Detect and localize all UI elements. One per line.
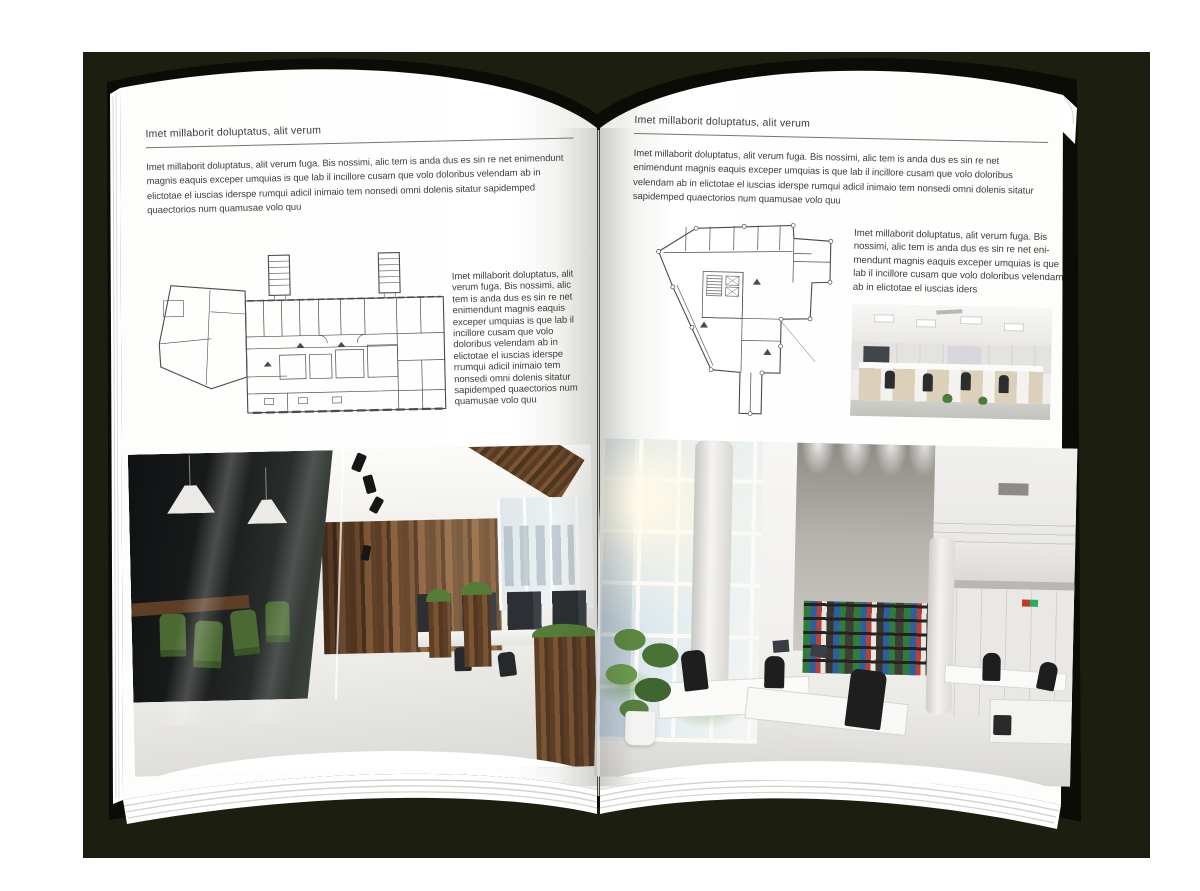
wood-planter bbox=[463, 593, 492, 668]
plan-section: Imet millaborit doluptatus, alit verum f… bbox=[123, 236, 590, 434]
header-rule bbox=[634, 133, 1048, 143]
left-page: Imet millaborit doluptatus, alit verum I… bbox=[120, 102, 599, 802]
right-column: Imet millaborit doluptatus, alit verum f… bbox=[850, 223, 1066, 428]
black-chair bbox=[844, 668, 887, 730]
office-photo-dark-wood bbox=[128, 444, 598, 776]
desk-plant bbox=[978, 396, 987, 404]
office-chair bbox=[885, 370, 895, 388]
office-chair bbox=[961, 372, 971, 390]
page-title: Imet millaborit doluptatus, alit verum bbox=[634, 114, 1076, 136]
waste-bin bbox=[993, 715, 1011, 735]
right-page: Imet millaborit doluptatus, alit verum I… bbox=[594, 93, 1085, 813]
wood-planter bbox=[428, 599, 451, 657]
wall-vent bbox=[998, 483, 1028, 496]
column bbox=[926, 537, 956, 714]
side-paragraph: Imet millaborit doluptatus, alit verum f… bbox=[853, 227, 1066, 298]
intro-paragraph: Imet millaborit doluptatus, alit verum f… bbox=[146, 151, 577, 218]
ceiling-light bbox=[1004, 323, 1024, 331]
floor-plan-wide-building bbox=[149, 239, 451, 434]
office-photo-bright-atrium bbox=[594, 438, 1077, 786]
glass-meeting-room bbox=[128, 450, 352, 727]
binder-bookshelf bbox=[802, 601, 930, 676]
black-chair bbox=[764, 656, 785, 688]
header-rule bbox=[146, 138, 574, 149]
office-photo-cubicles bbox=[850, 303, 1052, 419]
plan-section: Imet millaborit doluptatus, alit verum f… bbox=[602, 217, 1082, 427]
wood-planter bbox=[534, 634, 598, 767]
black-chair bbox=[982, 653, 1001, 681]
wall-screen bbox=[863, 346, 889, 363]
office-chair bbox=[497, 651, 517, 677]
page-title: Imet millaborit doluptatus, alit verum bbox=[145, 118, 575, 140]
floor-plan-irregular-building bbox=[642, 218, 842, 422]
monitor bbox=[810, 644, 828, 658]
office-chair bbox=[923, 373, 933, 391]
ceiling-light bbox=[874, 314, 894, 322]
monitor bbox=[773, 640, 790, 653]
first-aid-sign bbox=[1022, 600, 1038, 607]
desk-plant bbox=[942, 393, 952, 402]
side-paragraph: Imet millaborit doluptatus, alit verum f… bbox=[452, 268, 586, 427]
ceiling-light bbox=[960, 316, 982, 324]
intro-paragraph: Imet millaborit doluptatus, alit verum f… bbox=[633, 147, 1050, 213]
ceiling-light bbox=[916, 319, 936, 327]
glass-reflection bbox=[128, 450, 352, 727]
office-chair bbox=[999, 375, 1009, 393]
ceiling-vent bbox=[936, 309, 962, 314]
plant-pot bbox=[625, 711, 656, 746]
